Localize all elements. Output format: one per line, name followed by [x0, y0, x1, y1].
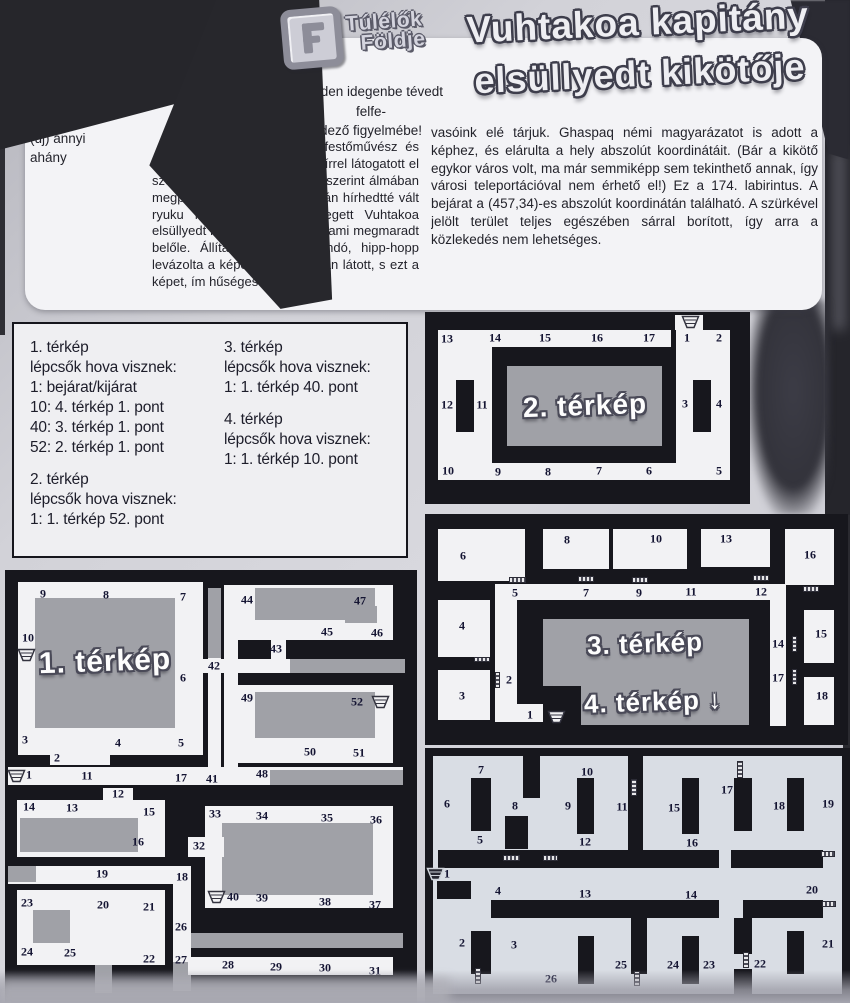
- legend-line: lépcsők hova visznek:: [224, 358, 404, 378]
- door-grate-icon: [578, 576, 594, 582]
- map-point-number: 10: [442, 464, 454, 479]
- map-wall-rect: [734, 778, 752, 831]
- map-point-number: 46: [371, 626, 383, 641]
- map-point-number: 37: [369, 898, 381, 913]
- door-grate-icon: [822, 901, 836, 907]
- map-point-number: 18: [773, 799, 785, 814]
- map-wall-rect: [471, 778, 491, 831]
- map-wall-rect: [437, 881, 471, 899]
- legend-line: lépcsők hova visznek:: [30, 358, 215, 378]
- stairs-icon: [371, 695, 390, 709]
- map-point-number: 20: [97, 898, 109, 913]
- map-wall-rect: [456, 380, 474, 432]
- map-point-number: 15: [668, 801, 680, 816]
- map-point-number: 4: [459, 619, 465, 634]
- map-point-number: 47: [354, 594, 366, 609]
- legend-column-2: 3. térképlépcsők hova visznek:1: 1. térk…: [224, 338, 404, 470]
- map-point-number: 36: [370, 813, 382, 828]
- map-mud-rect: [208, 588, 221, 658]
- map-title-label: 4. térkép ↓: [583, 684, 722, 720]
- map-point-number: 27: [175, 953, 187, 968]
- map-floor-rect: [224, 585, 238, 767]
- legend-line: [30, 458, 215, 470]
- map-mud-rect: [20, 818, 138, 852]
- map-point-number: 9: [565, 799, 571, 814]
- map-title-label: 3. térkép: [587, 626, 704, 661]
- map-4-terkep: 7101768911151819512161413142023252624232…: [425, 748, 850, 1003]
- map-point-number: 34: [256, 809, 268, 824]
- map-point-number: 13: [579, 887, 591, 902]
- legend-line: [224, 398, 404, 410]
- map-wall-rect: [693, 380, 711, 432]
- map-point-number: 50: [304, 745, 316, 760]
- map-point-number: 24: [21, 945, 33, 960]
- map-point-number: 1: [684, 331, 690, 346]
- stairs-icon: [7, 769, 26, 783]
- map-point-number: 5: [512, 586, 518, 601]
- map-point-number: 4: [115, 736, 121, 751]
- map-point-number: 18: [176, 870, 188, 885]
- legend-line: 52: 2. térkép 1. pont: [30, 438, 215, 458]
- map-point-number: 10: [22, 631, 34, 646]
- map-point-number: 38: [319, 895, 331, 910]
- map-point-number: 9: [636, 586, 642, 601]
- legend-line: 40: 3. térkép 1. pont: [30, 418, 215, 438]
- map-point-number: 16: [132, 835, 144, 850]
- map-point-number: 10: [650, 532, 662, 547]
- map-point-number: 2: [506, 673, 512, 688]
- map-point-number: 8: [512, 799, 518, 814]
- map-point-number: 40: [227, 890, 239, 905]
- map-mud-rect: [222, 823, 373, 895]
- map-point-number: 10: [581, 765, 593, 780]
- map-mud-rect: [270, 770, 403, 785]
- map-point-number: 17: [772, 671, 784, 686]
- map-point-number: 12: [579, 835, 591, 850]
- map-point-number: 14: [23, 800, 35, 815]
- map-point-number: 5: [477, 833, 483, 848]
- door-grate-icon: [792, 636, 797, 652]
- map-title-label: 2. térkép: [522, 388, 647, 424]
- map-point-number: 1: [26, 768, 32, 783]
- map-wall-rect: [471, 931, 491, 974]
- map-mud-rect: [8, 866, 36, 882]
- map-point-number: 11: [81, 769, 92, 784]
- logo-text: Túlélők Földje: [345, 9, 426, 54]
- door-grate-icon: [821, 851, 835, 857]
- map-point-number: 13: [720, 532, 732, 547]
- map-point-number: 3: [459, 689, 465, 704]
- page-title-line1: Vuhtakoa kapitány: [439, 0, 835, 53]
- map-point-number: 18: [816, 689, 828, 704]
- stairs-icon: [426, 867, 445, 881]
- map-point-number: 17: [175, 771, 187, 786]
- map-point-number: 2: [459, 936, 465, 951]
- map-wall-rect: [438, 850, 719, 868]
- map-point-number: 11: [616, 800, 627, 815]
- map-point-number: 25: [64, 946, 76, 961]
- map-point-number: 4: [716, 397, 722, 412]
- map-point-number: 16: [804, 548, 816, 563]
- map-mud-rect: [33, 910, 70, 943]
- map-point-number: 1: [527, 708, 533, 723]
- door-grate-icon: [792, 669, 797, 685]
- map-floor-rect: [543, 529, 609, 569]
- map-point-number: 2: [54, 751, 60, 766]
- legend-line: 1: 1. térkép 52. pont: [30, 510, 215, 530]
- map-floor-rect: [438, 463, 730, 480]
- map-wall-rect: [491, 900, 719, 918]
- map-floor-rect: [701, 529, 770, 567]
- map-wall-rect: [505, 816, 528, 849]
- map-1-terkep: 9871063452111174144474546434249525051481…: [5, 570, 417, 1003]
- stairs-icon: [547, 710, 566, 724]
- legend-line: 10: 4. térkép 1. pont: [30, 398, 215, 418]
- article-column-right: vasóink elé tárjuk. Ghaspaq némi magyará…: [431, 124, 818, 304]
- door-grate-icon: [632, 577, 648, 583]
- map-point-number: 39: [256, 891, 268, 906]
- legend-line: 1: 1. térkép 40. pont: [224, 378, 404, 398]
- map-point-number: 21: [143, 900, 155, 915]
- stairs-icon: [207, 890, 226, 904]
- map-point-number: 49: [241, 691, 253, 706]
- door-grate-icon: [753, 575, 769, 581]
- map-point-number: 3: [511, 938, 517, 953]
- map-point-number: 43: [270, 642, 282, 657]
- tulelok-foldje-logo: Túlélők Földje: [282, 8, 447, 72]
- map-point-number: 14: [489, 331, 501, 346]
- logo-text-line2: Földje: [360, 29, 426, 53]
- map-point-number: 5: [178, 736, 184, 751]
- map-point-number: 51: [353, 746, 365, 761]
- door-grate-icon: [474, 657, 490, 662]
- door-grate-icon: [543, 855, 558, 861]
- door-grate-icon: [631, 779, 637, 796]
- door-grate-icon: [509, 577, 526, 583]
- map-wall-rect: [628, 755, 643, 850]
- map-point-number: 32: [193, 839, 205, 854]
- map-point-number: 6: [180, 671, 186, 686]
- map-point-number: 19: [822, 797, 834, 812]
- map-point-number: 11: [685, 585, 696, 600]
- legend-box: 1. térképlépcsők hova visznek:1: bejárat…: [12, 322, 408, 558]
- page-title-line2: elsüllyedt kikötője: [442, 44, 838, 103]
- map-point-number: 6: [444, 797, 450, 812]
- page-title: Vuhtakoa kapitány elsüllyedt kikötője: [439, 0, 839, 136]
- map-wall-rect: [787, 931, 804, 974]
- map-point-number: 3: [682, 397, 688, 412]
- map-2-terkep: 13141516171234567891011122. térkép: [425, 312, 750, 504]
- map-point-number: 48: [256, 767, 268, 782]
- map-point-number: 8: [545, 465, 551, 480]
- map-point-number: 16: [686, 836, 698, 851]
- map-point-number: 7: [478, 763, 484, 778]
- map-floor-rect: [495, 584, 517, 720]
- map-point-number: 33: [209, 807, 221, 822]
- door-grate-icon: [803, 586, 819, 592]
- map-floor-rect: [770, 584, 786, 726]
- tf-logo-glyph-mid: [303, 35, 321, 43]
- map-point-number: 9: [40, 587, 46, 602]
- map-point-number: 19: [96, 867, 108, 882]
- map-point-number: 52: [351, 695, 363, 710]
- map-point-number: 2: [716, 331, 722, 346]
- legend-line: 1. térkép: [30, 338, 215, 358]
- map-point-number: 6: [460, 549, 466, 564]
- map-point-number: 7: [596, 464, 602, 479]
- map-point-number: 12: [112, 787, 124, 802]
- map-wall-rect: [787, 778, 804, 831]
- map-wall-rect: [743, 900, 823, 918]
- map-point-number: 4: [495, 884, 501, 899]
- map-mud-rect: [191, 933, 403, 948]
- map-point-number: 3: [22, 733, 28, 748]
- map-point-number: 1: [444, 867, 450, 882]
- map-floor-rect: [438, 529, 525, 581]
- map-point-number: 5: [716, 464, 722, 479]
- bottom-page-edge-blur-left: [0, 978, 450, 1003]
- door-grate-icon: [743, 952, 749, 968]
- map-point-number: 7: [180, 590, 186, 605]
- background-photo-blur: [748, 300, 830, 515]
- map-point-number: 15: [143, 805, 155, 820]
- legend-line: 1: 1. térkép 10. pont: [224, 450, 404, 470]
- map-point-number: 17: [721, 783, 733, 798]
- map-point-number: 45: [321, 625, 333, 640]
- legend-line: lépcsők hova visznek:: [30, 490, 215, 510]
- legend-line: 3. térkép: [224, 338, 404, 358]
- map-point-number: 14: [772, 637, 784, 652]
- page-edge-highlight: [833, 150, 845, 330]
- door-grate-icon: [503, 855, 520, 861]
- map-point-number: 7: [583, 586, 589, 601]
- map-point-number: 20: [806, 883, 818, 898]
- legend-line: 1: bejárat/kijárat: [30, 378, 215, 398]
- map-point-number: 26: [175, 920, 187, 935]
- map-3-terkep: 6810131657911124321141715183. térkép4. t…: [425, 514, 848, 745]
- map-point-number: 15: [815, 627, 827, 642]
- map-point-number: 14: [685, 888, 697, 903]
- map-point-number: 21: [822, 937, 834, 952]
- map-point-number: 13: [441, 332, 453, 347]
- legend-line: 2. térkép: [30, 470, 215, 490]
- map-point-number: 8: [564, 533, 570, 548]
- map-point-number: 41: [206, 772, 218, 787]
- stairs-icon: [17, 648, 36, 662]
- map-mud-rect: [290, 659, 405, 673]
- map-point-number: 9: [495, 465, 501, 480]
- map-wall-rect: [577, 778, 594, 834]
- map-floor-rect: [495, 704, 543, 722]
- map-wall-rect: [523, 755, 540, 798]
- map-point-number: 44: [241, 593, 253, 608]
- map-point-number: 22: [143, 952, 155, 967]
- map-floor-rect: [510, 584, 786, 600]
- map-wall-rect: [631, 918, 647, 974]
- map-point-number: 35: [321, 811, 333, 826]
- map-point-number: 16: [591, 331, 603, 346]
- tf-logo-glyph-top: [302, 22, 325, 32]
- map-title-label: 1. térkép: [38, 643, 172, 682]
- legend-column-1: 1. térképlépcsők hova visznek:1: bejárat…: [30, 338, 215, 530]
- door-grate-icon: [737, 761, 743, 778]
- stairs-icon: [681, 315, 700, 329]
- map-point-number: 6: [646, 464, 652, 479]
- map-point-number: 17: [643, 331, 655, 346]
- map-point-number: 12: [441, 398, 453, 413]
- legend-line: 4. térkép: [224, 410, 404, 430]
- map-point-number: 11: [476, 398, 487, 413]
- map-wall-rect: [734, 918, 752, 954]
- tf-logo-icon: [279, 5, 344, 70]
- map-point-number: 12: [755, 585, 767, 600]
- map-point-number: 23: [21, 896, 33, 911]
- door-grate-icon: [495, 672, 500, 688]
- map-wall-rect: [682, 778, 699, 834]
- map-point-number: 13: [66, 801, 78, 816]
- map-wall-rect: [731, 850, 823, 868]
- map-mud-rect: [345, 606, 377, 623]
- map-point-number: 15: [539, 331, 551, 346]
- map-point-number: 8: [103, 588, 109, 603]
- legend-line: lépcsők hova visznek:: [224, 430, 404, 450]
- map-point-number: 42: [208, 659, 220, 674]
